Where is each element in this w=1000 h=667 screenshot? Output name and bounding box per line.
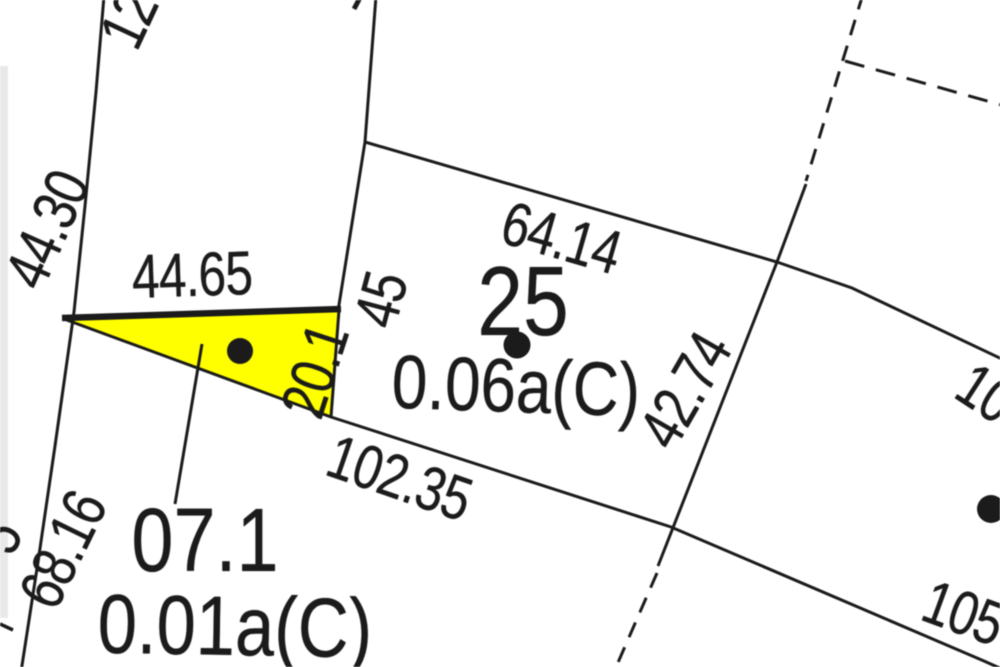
- dashed-line-north: [806, 0, 863, 181]
- parcel-area-07-1: 0.01a(C): [97, 582, 373, 667]
- parcel-area-25: 0.06a(C): [391, 345, 642, 430]
- cadastral-map: 44.30 12 1 44.65 45 20.1 64.14 42.74 102…: [0, 0, 1000, 667]
- dimension-label-44-65: 44.65: [131, 243, 253, 309]
- east-parcel-dot: [977, 495, 1000, 523]
- dashed-line-east-branch: [845, 61, 1000, 106]
- highlighted-parcel-dot: [227, 338, 253, 364]
- boundary-line-45: [338, 0, 376, 311]
- left-edge-partial-glyph: [0, 624, 13, 630]
- parcel-number-07-1: 07.1: [131, 496, 278, 586]
- dashed-line-south: [613, 573, 657, 667]
- leader-line: [175, 344, 202, 504]
- parcel-number-25: 25: [477, 252, 569, 350]
